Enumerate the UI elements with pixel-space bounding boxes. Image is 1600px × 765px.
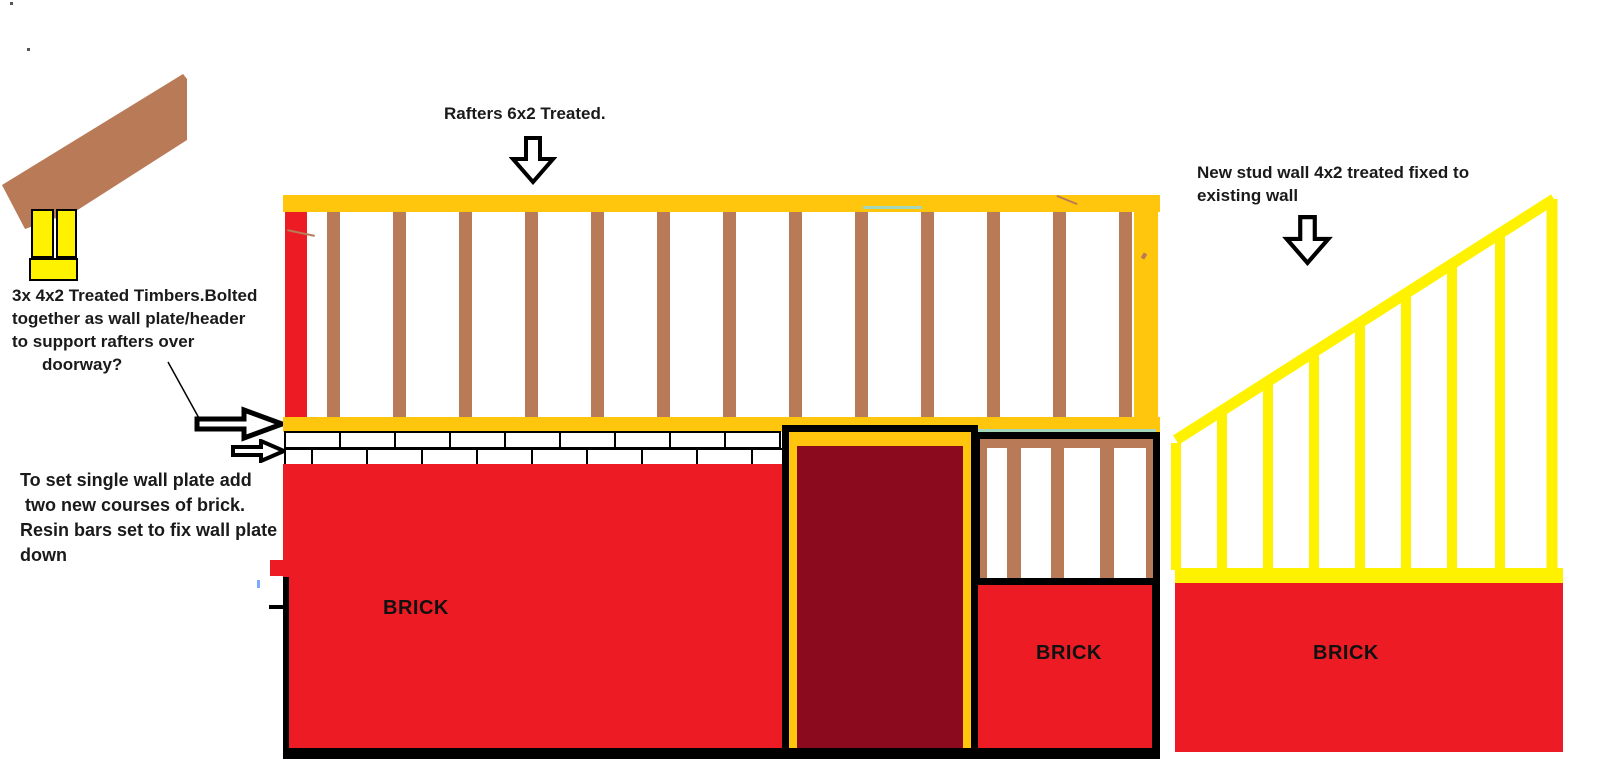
brick (394, 431, 451, 449)
stud-panel-top-plate (980, 439, 1153, 448)
stray-teal-line (863, 206, 922, 209)
red-notch-artifact (270, 560, 286, 576)
stray-dot (27, 48, 30, 51)
timbers-note: 3x 4x2 Treated Timbers.Bolted together a… (12, 284, 257, 376)
stray-dot (10, 2, 13, 5)
brick-wall-right (1175, 583, 1563, 752)
timbers-note-line: together as wall plate/header (12, 307, 257, 330)
base-line (283, 748, 1160, 759)
timbers-note-line: to support rafters over (12, 330, 257, 353)
rafter (789, 212, 802, 417)
brick (449, 431, 506, 449)
stud-panel-inner (980, 439, 1153, 578)
stud (1100, 448, 1114, 578)
rafters-label: Rafters 6x2 Treated. (444, 104, 606, 124)
construction-diagram: Rafters 6x2 Treated. 3x 4x2 Treated Timb… (0, 0, 1600, 765)
rafter (591, 212, 604, 417)
timbers-note-line: 3x 4x2 Treated Timbers.Bolted (12, 284, 257, 307)
rafter (393, 212, 406, 417)
rafter (459, 212, 472, 417)
wallplate-note-line: To set single wall plate add (20, 468, 277, 493)
wall-left-border (283, 577, 289, 758)
right-arrow-icon (194, 406, 286, 442)
rafter (987, 212, 1000, 417)
down-arrow-icon (509, 135, 557, 185)
timbers-note-line: doorway? (12, 353, 257, 376)
rafter (657, 212, 670, 417)
brick (339, 431, 396, 449)
rafter (1119, 212, 1132, 417)
brick (504, 431, 561, 449)
bolted-timber-vertical (56, 209, 77, 258)
brick (284, 431, 341, 449)
rafter (855, 212, 868, 417)
rafter (327, 212, 340, 417)
wallplate-note-line: down (20, 543, 277, 568)
rafter (723, 212, 736, 417)
brick (669, 431, 726, 449)
brick-pier-middle (978, 585, 1153, 752)
brick-wall-right-label: BRICK (1313, 642, 1379, 665)
rafter (1053, 212, 1066, 417)
right-arrow-icon (231, 439, 287, 463)
frame-left-red-strip (285, 212, 307, 417)
rafter (921, 212, 934, 417)
wallplate-note-line: Resin bars set to fix wall plate (20, 518, 277, 543)
triangle-stud-wall-svg (1150, 170, 1600, 600)
brick (559, 431, 616, 449)
wallplate-note-line: two new courses of brick. (20, 493, 277, 518)
bolted-timber-horizontal (29, 258, 78, 281)
header-beam-detail (0, 60, 200, 240)
brick-pier-label: BRICK (1036, 642, 1102, 665)
stud (980, 448, 987, 578)
brick-pier-right-border (1152, 585, 1160, 759)
bolted-timber-vertical (31, 209, 54, 258)
doorway-opening (797, 446, 963, 750)
triangle-sole-plate (1175, 568, 1563, 583)
wallplate-note: To set single wall plate add two new cou… (20, 468, 277, 568)
brick (724, 431, 781, 449)
stud (1051, 448, 1064, 578)
rafter (525, 212, 538, 417)
beam-polygon (2, 74, 187, 229)
brick-wall-left-label: BRICK (383, 597, 449, 620)
stud (1007, 448, 1021, 578)
brick-wall-left (283, 464, 783, 752)
stray-blue-tick (257, 580, 260, 588)
frame-top-plate (283, 195, 1160, 212)
brick (614, 431, 671, 449)
